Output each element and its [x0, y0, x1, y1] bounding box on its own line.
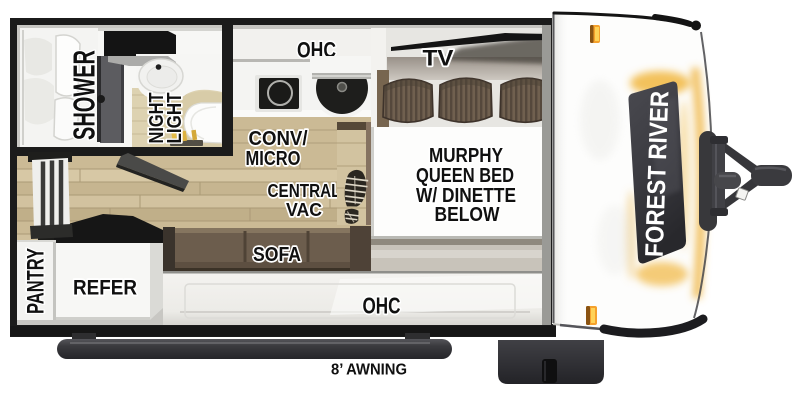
svg-text:MURPHY: MURPHY [429, 145, 504, 167]
svg-text:CONV/: CONV/ [249, 128, 308, 150]
svg-text:MICRO: MICRO [246, 148, 301, 170]
svg-text:TV: TV [423, 46, 454, 71]
svg-text:LIGHT: LIGHT [163, 92, 186, 143]
svg-text:FOREST RIVER: FOREST RIVER [641, 91, 675, 258]
svg-text:OHC: OHC [363, 293, 401, 319]
svg-text:VAC: VAC [286, 200, 322, 220]
svg-text:BELOW: BELOW [435, 204, 500, 226]
svg-text:8’ AWNING: 8’ AWNING [331, 362, 407, 379]
svg-text:REFER: REFER [73, 277, 137, 300]
svg-text:SHOWER: SHOWER [67, 50, 102, 140]
svg-text:QUEEN BED: QUEEN BED [416, 165, 514, 187]
svg-text:PANTRY: PANTRY [23, 248, 50, 314]
svg-text:SOFA: SOFA [253, 244, 301, 266]
svg-text:CENTRAL: CENTRAL [268, 181, 341, 201]
